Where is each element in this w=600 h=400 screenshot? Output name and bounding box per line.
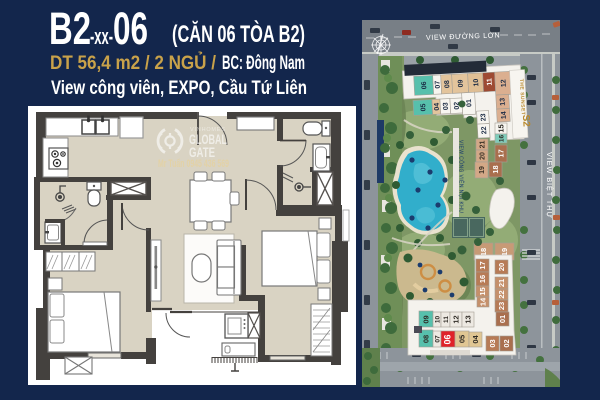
- svg-text:19: 19: [479, 166, 486, 174]
- svg-text:23: 23: [480, 113, 487, 121]
- svg-text:23: 23: [497, 302, 506, 310]
- svg-text:18: 18: [491, 165, 500, 173]
- svg-text:22: 22: [497, 290, 506, 298]
- svg-text:08: 08: [422, 335, 431, 343]
- svg-text:04: 04: [434, 103, 441, 111]
- svg-text:05: 05: [420, 103, 427, 111]
- svg-text:04: 04: [471, 335, 480, 344]
- svg-text:17: 17: [497, 149, 506, 157]
- svg-text:22: 22: [481, 126, 488, 134]
- svg-text:15: 15: [478, 287, 487, 295]
- svg-text:VIEW CÔNG VIÊN NỘI KHU: VIEW CÔNG VIÊN NỘI KHU: [458, 140, 466, 213]
- svg-text:20: 20: [480, 152, 487, 160]
- svg-text:01: 01: [466, 99, 473, 107]
- svg-text:06: 06: [421, 81, 428, 89]
- svg-text:03: 03: [443, 102, 450, 110]
- svg-text:07: 07: [435, 335, 442, 343]
- svg-text:10: 10: [435, 316, 442, 324]
- svg-text:09: 09: [457, 79, 464, 87]
- svg-text:01: 01: [498, 315, 507, 323]
- svg-text:02: 02: [502, 339, 511, 347]
- svg-text:11: 11: [443, 316, 450, 323]
- svg-text:07: 07: [434, 80, 441, 88]
- svg-text:05: 05: [458, 335, 467, 343]
- svg-text:12: 12: [452, 315, 461, 323]
- svg-text:17: 17: [478, 261, 487, 269]
- svg-text:14: 14: [501, 111, 508, 119]
- svg-text:12: 12: [500, 79, 507, 87]
- svg-text:21: 21: [497, 279, 506, 287]
- svg-text:14: 14: [479, 297, 488, 306]
- svg-text:09: 09: [422, 315, 431, 323]
- svg-text:16: 16: [478, 275, 487, 283]
- svg-text:11: 11: [486, 78, 493, 86]
- svg-text:13: 13: [499, 98, 506, 106]
- svg-text:10: 10: [473, 78, 480, 86]
- svg-text:08: 08: [444, 80, 451, 88]
- svg-text:S2: S2: [520, 114, 532, 127]
- svg-text:15: 15: [497, 124, 506, 132]
- svg-text:VIEW BIỆT THỰ: VIEW BIỆT THỰ: [545, 152, 554, 219]
- svg-text:03: 03: [488, 339, 497, 347]
- svg-text:06: 06: [443, 334, 453, 344]
- svg-text:16: 16: [499, 135, 506, 143]
- svg-text:20: 20: [497, 263, 506, 271]
- svg-text:21: 21: [480, 141, 487, 149]
- svg-text:13: 13: [464, 315, 473, 323]
